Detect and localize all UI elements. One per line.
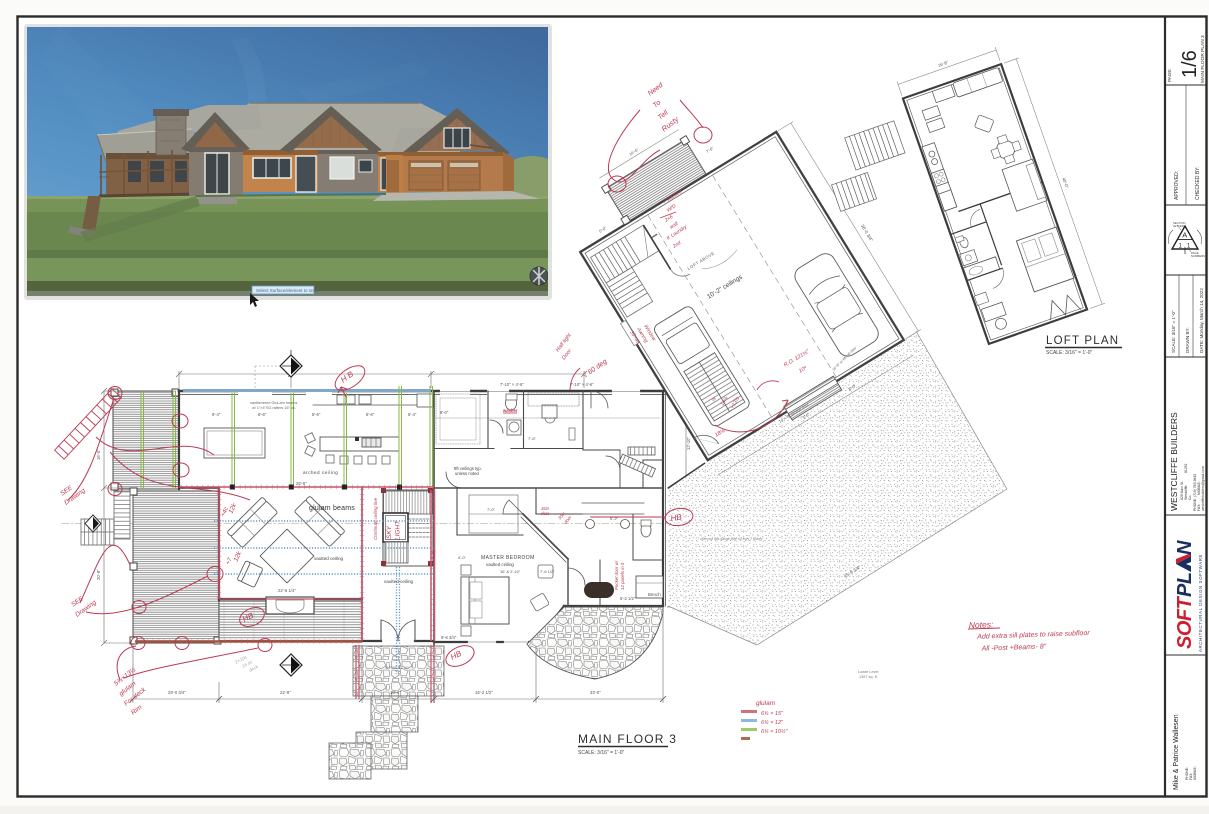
svg-text:DRAWN BY:: DRAWN BY: (1185, 327, 1190, 353)
svg-text:SCALE: 3/16" = 1'-0": SCALE: 3/16" = 1'-0" (578, 750, 625, 756)
svg-text:LOFT PLAN: LOFT PLAN (1046, 335, 1119, 347)
svg-text:SOFT: SOFT (1174, 595, 1196, 649)
svg-text:Bench: Bench (648, 592, 661, 597)
svg-text:7'-6 1/2": 7'-6 1/2" (540, 569, 555, 574)
svg-text:5'-2 1/2": 5'-2 1/2" (620, 596, 636, 601)
svg-text:4'-0": 4'-0" (458, 555, 467, 560)
svg-text:cantilevered GluLam beams: cantilevered GluLam beams (250, 401, 297, 405)
svg-text:HB: HB (670, 512, 683, 523)
svg-text:Lower Level: Lower Level (858, 670, 879, 674)
svg-text:MAIN FLOOR PLAN 3: MAIN FLOOR PLAN 3 (1200, 35, 1206, 83)
svg-text:MOBILE:: MOBILE: (1193, 766, 1197, 780)
svg-text:CHECKED BY:: CHECKED BY: (1195, 166, 1201, 200)
svg-text:9'-6 3/4": 9'-6 3/4" (441, 635, 457, 640)
svg-text:8'-4": 8'-4" (212, 412, 221, 417)
svg-text:PL: PL (1174, 572, 1196, 597)
svg-text:-6 RISERS VG: -6 RISERS VG (385, 666, 409, 670)
svg-text:LETTER: LETTER (1173, 224, 1184, 228)
svg-text:6¾ × 12": 6¾ × 12" (761, 720, 784, 726)
svg-text:door: door (541, 511, 550, 516)
svg-text:A: A (1182, 231, 1187, 240)
svg-text:WESTCLIFFE BUILDERS: WESTCLIFFE BUILDERS (1169, 412, 1179, 511)
svg-text:SKY: SKY (386, 525, 393, 539)
svg-text:29'-0 3/4": 29'-0 3/4" (168, 690, 186, 695)
svg-text:12 panels in it: 12 panels in it (620, 562, 625, 590)
svg-text:w/ 1"×4"SG rafters 16" oc.: w/ 1"×4"SG rafters 16" oc. (252, 406, 296, 410)
svg-text:MAIN FLOOR 3: MAIN FLOOR 3 (578, 732, 677, 746)
svg-text:1/6: 1/6 (1179, 50, 1201, 78)
svg-text:8'-6": 8'-6" (258, 412, 267, 417)
svg-text:SCALE: 3/16" = 1'-0": SCALE: 3/16" = 1'-0" (1171, 310, 1176, 353)
svg-text:APPROVED:: APPROVED: (1174, 171, 1180, 200)
svg-text:NUMBERS: NUMBERS (1191, 254, 1205, 258)
svg-text:Continual ceiling line: Continual ceiling line (373, 497, 378, 540)
svg-text:20'-8": 20'-8" (96, 569, 101, 580)
svg-text:MASTER BEDROOM: MASTER BEDROOM (481, 555, 535, 561)
svg-text:PAGE:: PAGE: (1167, 68, 1172, 82)
svg-text:westcliffebuilders@gmail.com: westcliffebuilders@gmail.com (1201, 466, 1205, 511)
svg-text:12'-10": 12'-10" (686, 436, 691, 450)
svg-text:22'-8": 22'-8" (280, 690, 291, 695)
svg-text:unless noted: unless noted (455, 471, 479, 476)
svg-text:8'-6": 8'-6" (312, 412, 321, 417)
svg-text:81252: 81252 (1184, 463, 1188, 473)
svg-text:1397 sq. ft.: 1397 sq. ft. (859, 675, 878, 679)
svg-text:washer: washer (502, 408, 518, 413)
svg-text:7'-0": 7'-0" (487, 507, 496, 512)
svg-text:vaulted ceiling: vaulted ceiling (314, 556, 344, 561)
svg-text:18'-4": 18'-4" (390, 690, 401, 695)
svg-text:Pocket door w/: Pocket door w/ (614, 560, 619, 590)
svg-text:Co.: Co. (1188, 495, 1192, 500)
svg-text:6¾ × 15": 6¾ × 15" (761, 711, 784, 717)
svg-text:7'-10" × 4'-6": 7'-10" × 4'-6" (570, 382, 594, 387)
svg-text:6'-4": 6'-4" (408, 412, 417, 417)
svg-text:16'-2 1/2": 16'-2 1/2" (475, 690, 493, 695)
svg-text:ARCHITECTURAL DESIGN SOFTWARE: ARCHITECTURAL DESIGN SOFTWARE (1198, 554, 1203, 652)
svg-text:DATE: Monday, March 14, 2022: DATE: Monday, March 14, 2022 (1199, 288, 1204, 353)
svg-text:N: N (1174, 540, 1196, 555)
svg-text:open cut has gauge wire for ev: open cut has gauge wire for evry 7 turke… (700, 537, 763, 541)
svg-text:arched ceiling: arched ceiling (303, 470, 338, 475)
svg-text:vaulted ceiling: vaulted ceiling (486, 562, 514, 567)
svg-text:glulam: glulam (756, 700, 776, 707)
svg-text:glulam beams: glulam beams (309, 505, 355, 512)
svg-text:33'-0": 33'-0" (590, 690, 601, 695)
svg-text:7'-10" × 4'-6": 7'-10" × 4'-6" (500, 382, 524, 387)
svg-text:SCALE: 3/16" = 1'-0": SCALE: 3/16" = 1'-0" (1046, 350, 1093, 356)
svg-text:6¾ × 10½": 6¾ × 10½" (761, 728, 789, 735)
svg-text:8'-6": 8'-6" (366, 412, 375, 417)
svg-text:25'-6": 25'-6" (296, 481, 307, 486)
svg-text:LIGHT: LIGHT (395, 520, 402, 540)
svg-text:Mike & Patrice Wallesen: Mike & Patrice Wallesen (1173, 714, 1180, 790)
svg-text:8'-0": 8'-0" (440, 410, 449, 415)
svg-text:22'-6 1/4": 22'-6 1/4" (278, 588, 296, 593)
svg-text:7'-6": 7'-6" (528, 436, 537, 441)
svg-text:16' & 2'-10": 16' & 2'-10" (500, 569, 521, 574)
svg-text:vaulted ceiling: vaulted ceiling (384, 579, 414, 584)
